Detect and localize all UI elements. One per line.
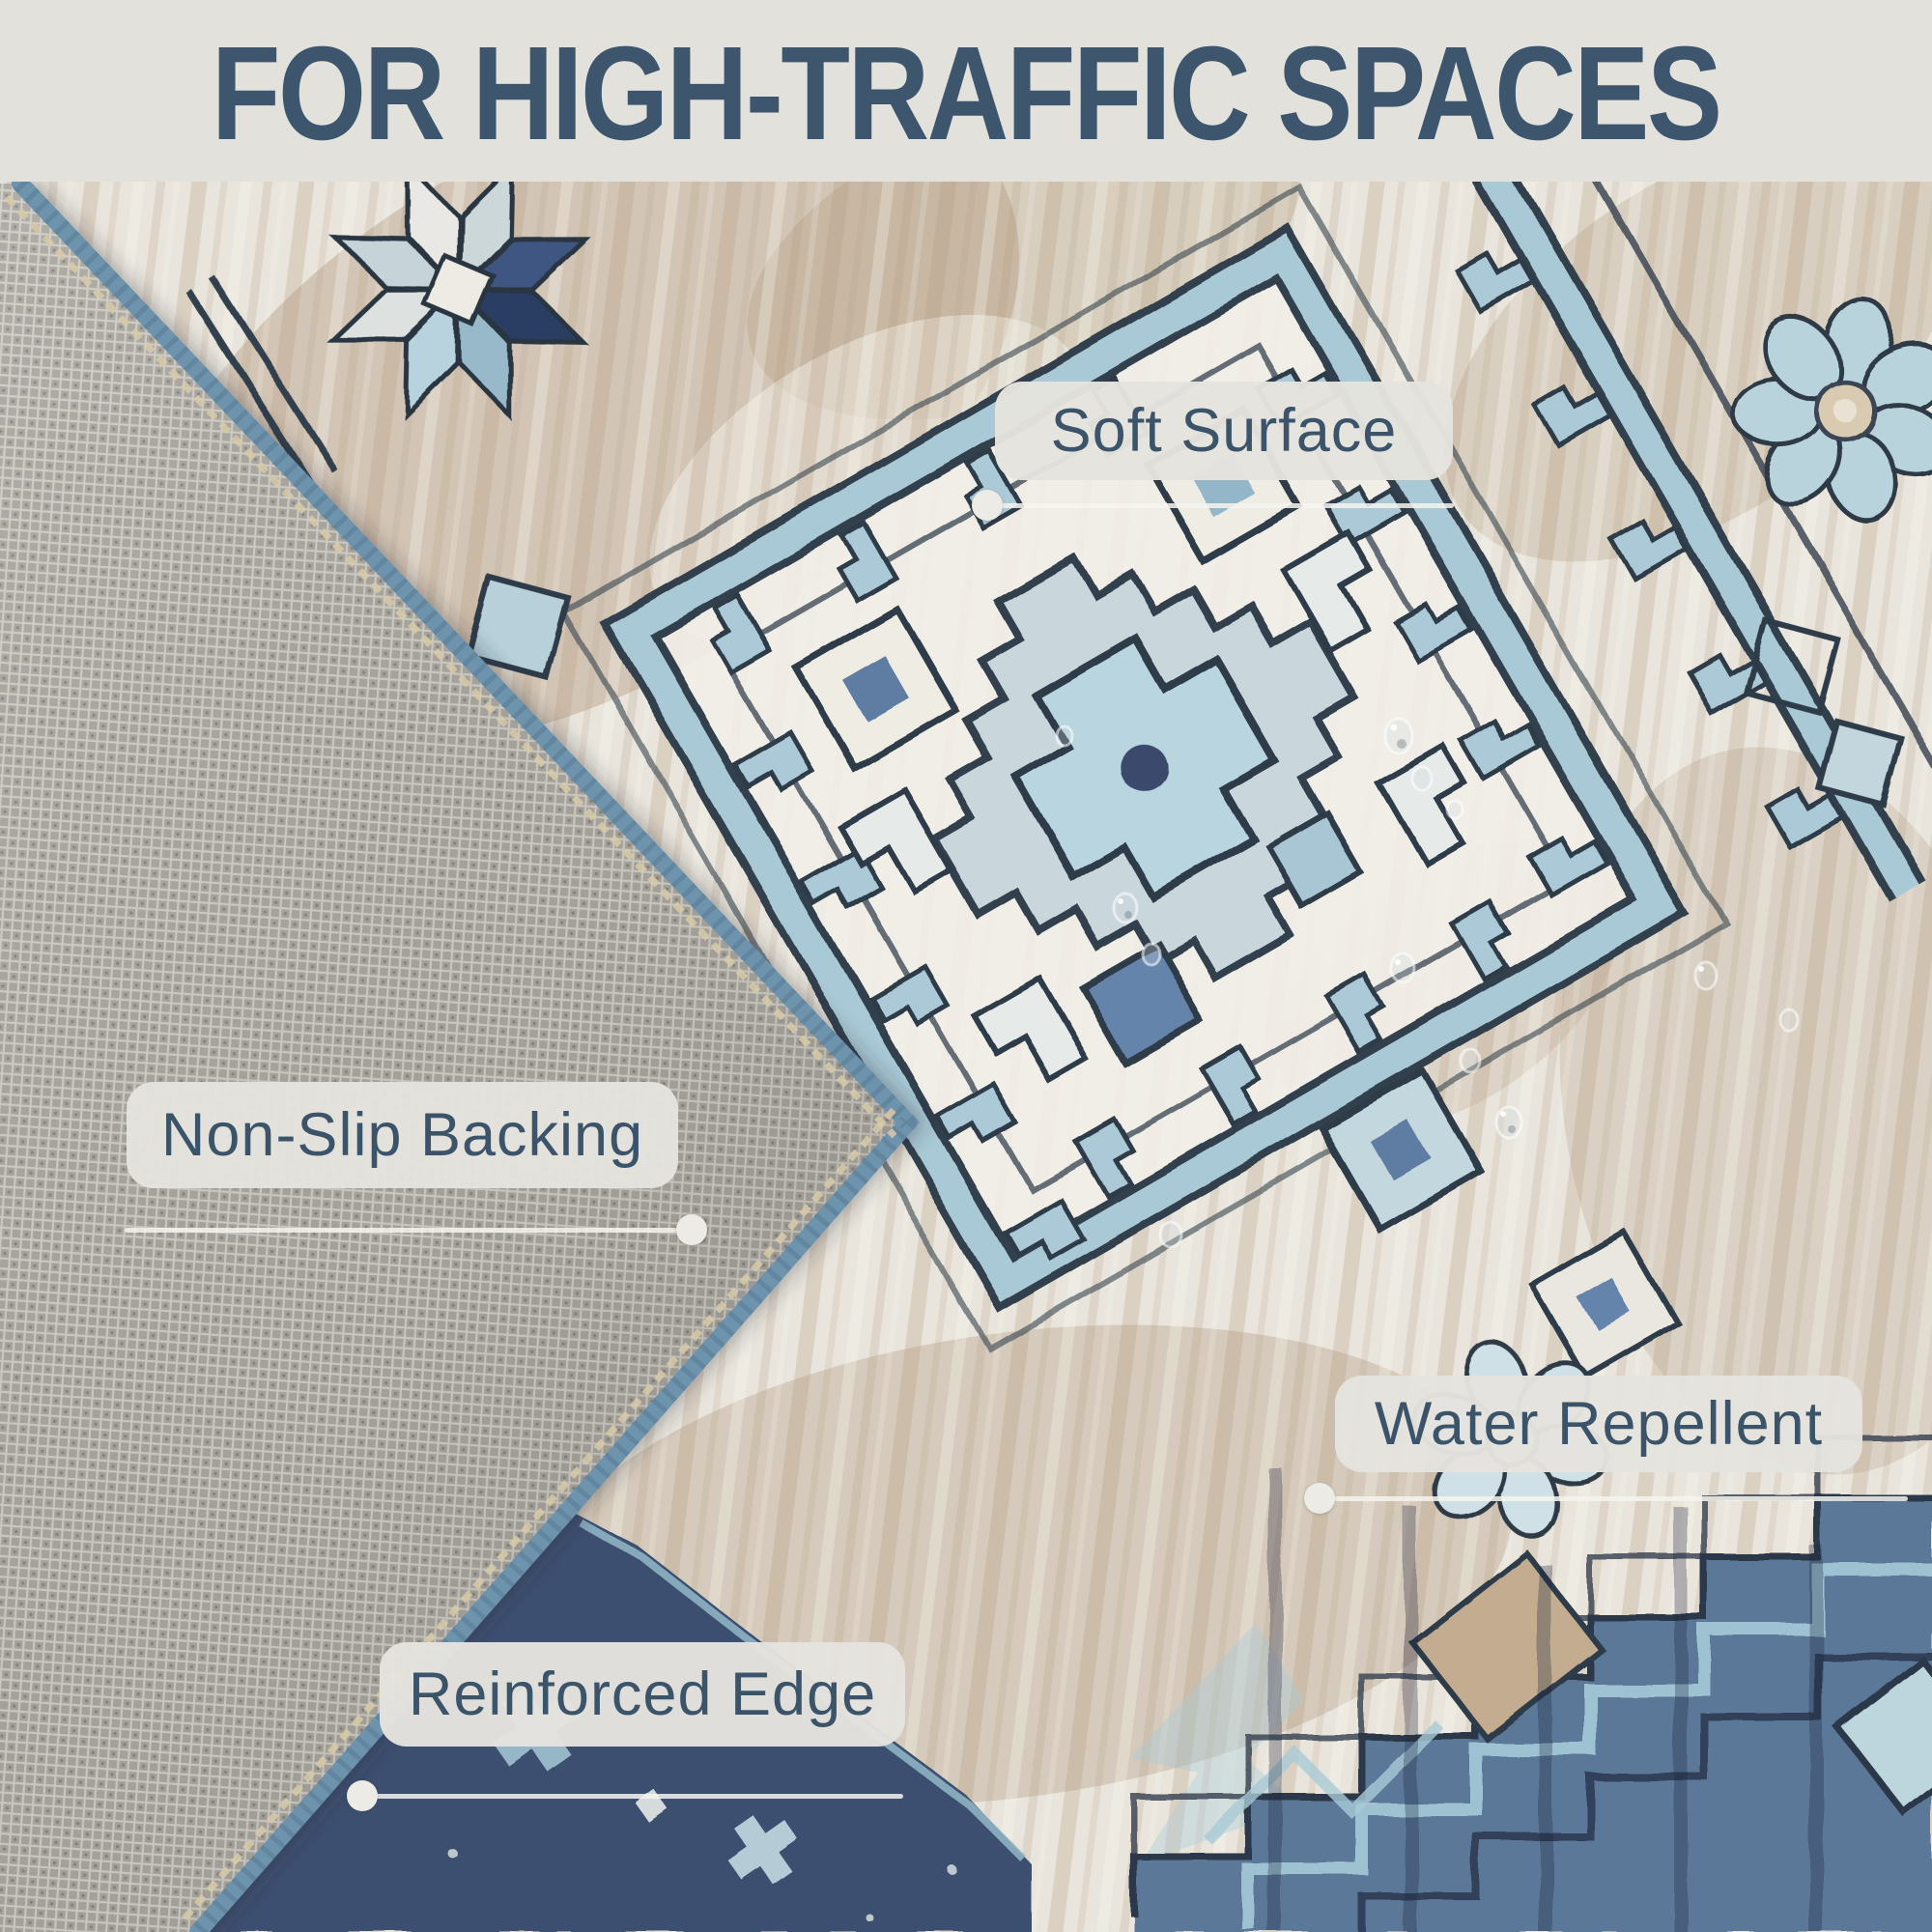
callout-label: Water Repellent <box>1375 1389 1823 1459</box>
callout-label: Reinforced Edge <box>409 1660 876 1729</box>
callout-soft-surface: Soft Surface <box>995 382 1453 480</box>
callout-dot <box>676 1214 707 1245</box>
callout-label: Soft Surface <box>1051 396 1398 466</box>
header-band: FOR HIGH-TRAFFIC SPACES <box>0 0 1932 182</box>
callout-dot <box>347 1780 378 1811</box>
page-title: FOR HIGH-TRAFFIC SPACES <box>212 21 1720 160</box>
callout-line <box>1320 1496 1908 1501</box>
callout-water-repellent: Water Repellent <box>1335 1376 1862 1472</box>
callout-dot <box>1304 1483 1335 1514</box>
callout-line <box>987 503 1454 508</box>
callout-dot <box>972 490 1003 521</box>
callout-non-slip-backing: Non-Slip Backing <box>127 1082 678 1188</box>
callout-label: Non-Slip Backing <box>161 1100 643 1170</box>
infographic: FOR HIGH-TRAFFIC SPACES <box>0 0 1932 1932</box>
callout-line <box>362 1794 903 1799</box>
callout-reinforced-edge: Reinforced Edge <box>380 1642 905 1747</box>
callout-line <box>125 1228 677 1233</box>
product-photo <box>0 182 1932 1932</box>
